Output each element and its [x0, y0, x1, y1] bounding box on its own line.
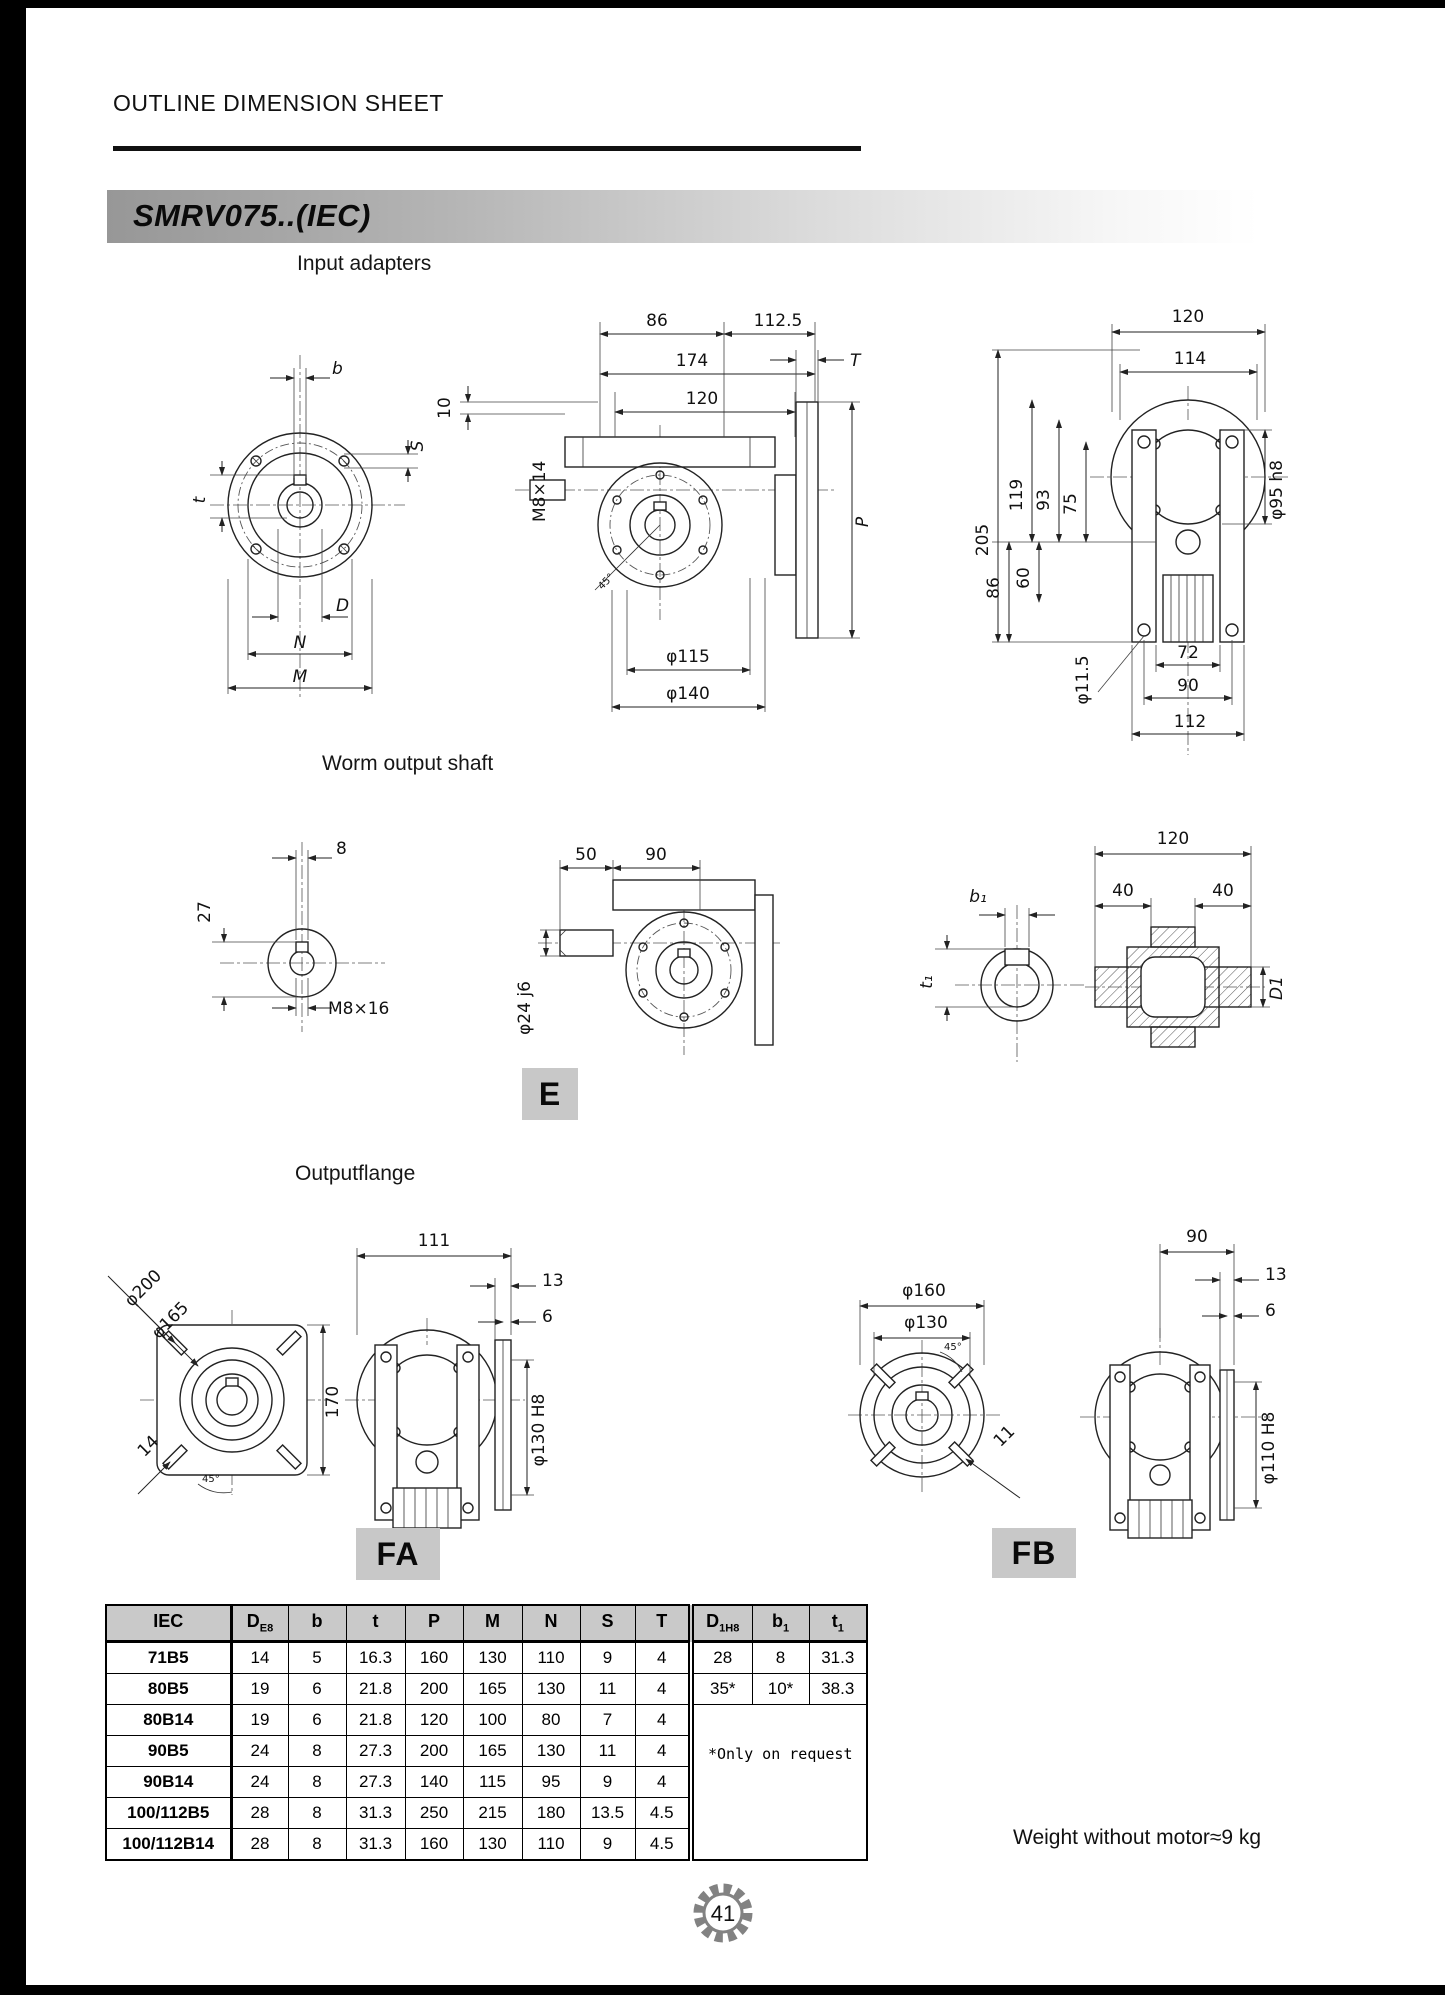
dim-label: D	[336, 596, 349, 616]
table-cell: 19	[231, 1705, 288, 1736]
table-header-row: IEC DE8 b t P M N S T D1H8 b1 t1	[106, 1605, 867, 1642]
input-front-drawing: 120 114 205 119 93 75 86 60 φ95 h8 φ11.5…	[960, 290, 1320, 770]
dim-label: D1	[1267, 976, 1287, 1000]
table-cell: 28	[231, 1829, 288, 1861]
dim-label: 120	[1157, 829, 1189, 849]
column-header-iec: IEC	[106, 1605, 231, 1642]
table-cell: 8	[288, 1736, 346, 1767]
table-cell: 4	[635, 1705, 691, 1736]
gear-icon: 41	[688, 1878, 758, 1948]
page-number-badge: 41	[688, 1878, 758, 1948]
worm-bore-drawing: b₁ t₁ 120 40 40 D1	[900, 810, 1320, 1080]
page-top-border	[0, 0, 1445, 8]
dim-label: φ110 H8	[1259, 1412, 1279, 1485]
table-cell: 110	[522, 1829, 580, 1861]
dim-label: 90	[1186, 1227, 1208, 1247]
table-cell: 27.3	[346, 1767, 405, 1798]
dim-label: 50	[575, 845, 597, 865]
table-row: 71B5 14 5 16.3 160 130 110 9 4 28 8 31.3	[106, 1642, 867, 1674]
table-cell: 165	[463, 1674, 522, 1705]
table-cell: 38.3	[809, 1674, 867, 1705]
dim-label: t₁	[917, 975, 937, 988]
page-bottom-border	[0, 1985, 1445, 1995]
dim-label: 75	[1061, 493, 1081, 515]
dim-label: φ200	[121, 1266, 166, 1311]
dim-label: 120	[1172, 307, 1204, 327]
table-cell: 10*	[752, 1674, 809, 1705]
table-cell: 31.3	[809, 1642, 867, 1674]
page-left-border	[0, 0, 26, 1995]
dim-label: 40	[1212, 881, 1234, 901]
dim-label: 45°	[944, 1342, 962, 1353]
dim-label: 8	[336, 839, 347, 859]
dim-label: 93	[1034, 489, 1054, 511]
dim-label: 40	[1112, 881, 1134, 901]
column-header-t2: T	[635, 1605, 691, 1642]
table-cell: 6	[288, 1705, 346, 1736]
table-cell: 9	[580, 1829, 635, 1861]
table-cell: 21.8	[346, 1674, 405, 1705]
variant-label-fb: FB	[992, 1528, 1076, 1578]
table-cell: 71B5	[106, 1642, 231, 1674]
input-side-drawing: 86 112.5 174 120 10 M8×14 45° T P	[420, 290, 920, 730]
table-cell: 8	[288, 1829, 346, 1861]
dim-label: 112	[1174, 712, 1206, 732]
dim-label: 114	[1174, 349, 1206, 369]
dim-label: 86	[646, 311, 668, 331]
variant-label-fa: FA	[356, 1528, 440, 1580]
column-header-s: S	[580, 1605, 635, 1642]
dim-label: 6	[542, 1307, 553, 1327]
table-cell: 21.8	[346, 1705, 405, 1736]
table-row: 80B14 19 6 21.8 120 100 80 7 4 *Only on …	[106, 1705, 867, 1736]
table-cell: 130	[463, 1642, 522, 1674]
section-title-output-flange: Outputflange	[295, 1162, 415, 1186]
table-row: 80B5 19 6 21.8 200 165 130 11 4 35* 10* …	[106, 1674, 867, 1705]
table-cell: 8	[288, 1767, 346, 1798]
dim-label: b	[332, 359, 343, 379]
section-title-input-adapters: Input adapters	[297, 252, 431, 276]
column-header-t: t	[346, 1605, 405, 1642]
input-flange-drawing: b S t D N M	[160, 330, 450, 720]
table-cell: 4.5	[635, 1829, 691, 1861]
table-cell: 24	[231, 1767, 288, 1798]
table-cell: 4.5	[635, 1798, 691, 1829]
dim-label: 72	[1177, 643, 1199, 663]
table-cell: 5	[288, 1642, 346, 1674]
table-cell: 28	[231, 1798, 288, 1829]
model-title: SMRV075..(IEC)	[107, 190, 1259, 242]
dim-label: 205	[973, 524, 993, 556]
table-cell: 165	[463, 1736, 522, 1767]
dim-label: φ140	[666, 684, 710, 704]
table-cell: 140	[405, 1767, 463, 1798]
table-cell: 24	[231, 1736, 288, 1767]
table-cell: 11	[580, 1736, 635, 1767]
table-cell: 130	[522, 1736, 580, 1767]
dim-label: φ95 h8	[1267, 460, 1287, 520]
column-header-b: b	[288, 1605, 346, 1642]
section-title-worm-output-shaft: Worm output shaft	[322, 752, 493, 776]
variant-label-e: E	[522, 1068, 578, 1120]
dim-label: 90	[1177, 676, 1199, 696]
dim-label: 27	[195, 901, 215, 923]
table-cell: 9	[580, 1767, 635, 1798]
datasheet-page: OUTLINE DIMENSION SHEET SMRV075..(IEC) I…	[0, 0, 1445, 1995]
table-cell: 100	[463, 1705, 522, 1736]
dim-label: φ130	[904, 1313, 948, 1333]
table-cell: 110	[522, 1642, 580, 1674]
spec-table-container: IEC DE8 b t P M N S T D1H8 b1 t1 71B5 14…	[105, 1604, 868, 1861]
table-cell: 80	[522, 1705, 580, 1736]
dim-label: φ11.5	[1073, 655, 1093, 704]
table-cell: 16.3	[346, 1642, 405, 1674]
column-header-d: DE8	[231, 1605, 288, 1642]
table-cell: 4	[635, 1736, 691, 1767]
dim-label: N	[294, 633, 307, 653]
column-header-p: P	[405, 1605, 463, 1642]
column-header-d1: D1H8	[691, 1605, 752, 1642]
dim-label: 45°	[596, 572, 616, 592]
table-cell: 250	[405, 1798, 463, 1829]
weight-note: Weight without motor≈9 kg	[1013, 1826, 1261, 1850]
table-cell: 4	[635, 1767, 691, 1798]
table-cell: 31.3	[346, 1798, 405, 1829]
table-cell: 6	[288, 1674, 346, 1705]
dim-label: φ130 H8	[529, 1394, 549, 1467]
table-cell: 115	[463, 1767, 522, 1798]
dim-label: 174	[676, 351, 708, 371]
title-rule	[113, 146, 861, 151]
dim-label: 90	[645, 845, 667, 865]
dim-label: φ115	[666, 647, 710, 667]
dim-label: φ24 j6	[515, 981, 535, 1035]
table-cell: 95	[522, 1767, 580, 1798]
column-header-n: N	[522, 1605, 580, 1642]
table-cell: 80B14	[106, 1705, 231, 1736]
dim-label: T	[850, 351, 862, 371]
dim-label: t	[190, 495, 210, 503]
table-cell: 180	[522, 1798, 580, 1829]
table-cell: 100/112B14	[106, 1829, 231, 1861]
table-cell: 130	[463, 1829, 522, 1861]
dim-label: b₁	[969, 887, 987, 907]
dimension-table: IEC DE8 b t P M N S T D1H8 b1 t1 71B5 14…	[105, 1604, 868, 1861]
dim-label: 60	[1014, 567, 1034, 589]
dim-label: 45°	[202, 1474, 220, 1485]
table-cell: 215	[463, 1798, 522, 1829]
dim-label: 13	[542, 1271, 564, 1291]
page-number: 41	[711, 1901, 735, 1926]
table-cell: 200	[405, 1736, 463, 1767]
dim-label: M8×16	[328, 999, 389, 1019]
table-cell: 13.5	[580, 1798, 635, 1829]
output-fb-side-drawing: 90 13 6 φ110 H8	[1060, 1220, 1340, 1530]
table-cell: 35*	[691, 1674, 752, 1705]
table-cell: 90B14	[106, 1767, 231, 1798]
dim-label: 6	[1265, 1301, 1276, 1321]
worm-side-drawing: 50 90 φ24 j6	[480, 810, 800, 1070]
dim-label: 119	[1007, 479, 1027, 511]
table-cell: 8	[752, 1642, 809, 1674]
page-title: OUTLINE DIMENSION SHEET	[113, 90, 444, 117]
column-header-m: M	[463, 1605, 522, 1642]
table-cell: 130	[522, 1674, 580, 1705]
table-cell: 90B5	[106, 1736, 231, 1767]
table-cell: 11	[580, 1674, 635, 1705]
dim-label: 112.5	[754, 311, 803, 331]
table-cell: 4	[635, 1642, 691, 1674]
dim-label: 111	[418, 1231, 450, 1251]
table-cell: 8	[288, 1798, 346, 1829]
table-cell: 19	[231, 1674, 288, 1705]
table-cell: 28	[691, 1642, 752, 1674]
output-square-flange-drawing: φ200 φ165 170 14 45°	[80, 1240, 360, 1520]
worm-end-drawing: 8 27 M8×16	[180, 820, 420, 1050]
dim-label: φ160	[902, 1281, 946, 1301]
table-cell: 200	[405, 1674, 463, 1705]
column-header-b1: b1	[752, 1605, 809, 1642]
table-cell: 27.3	[346, 1736, 405, 1767]
table-cell: 4	[635, 1674, 691, 1705]
table-cell: 14	[231, 1642, 288, 1674]
table-cell: 31.3	[346, 1829, 405, 1861]
hollow-shaft-section	[1095, 927, 1251, 1047]
output-fa-drawing: 111 13 6 φ130 H8	[330, 1220, 570, 1530]
output-fb-flange-drawing: φ160 φ130 45° 11	[820, 1240, 1060, 1520]
dim-label: M8×14	[530, 461, 550, 522]
model-title-bar: SMRV075..(IEC)	[107, 190, 1259, 243]
dim-label: 11	[990, 1422, 1019, 1451]
dim-label: 86	[984, 577, 1004, 599]
dim-label: M	[293, 667, 308, 687]
table-cell: 7	[580, 1705, 635, 1736]
dim-label: 13	[1265, 1265, 1287, 1285]
table-cell: 160	[405, 1829, 463, 1861]
dim-label: P	[853, 516, 873, 527]
table-cell: 80B5	[106, 1674, 231, 1705]
table-note-cell: *Only on request	[691, 1705, 867, 1861]
table-cell: 160	[405, 1642, 463, 1674]
dim-label: 10	[435, 397, 455, 419]
table-cell: 9	[580, 1642, 635, 1674]
column-header-t1: t1	[809, 1605, 867, 1642]
table-cell: 120	[405, 1705, 463, 1736]
table-cell: 100/112B5	[106, 1798, 231, 1829]
dim-label: 120	[686, 389, 718, 409]
